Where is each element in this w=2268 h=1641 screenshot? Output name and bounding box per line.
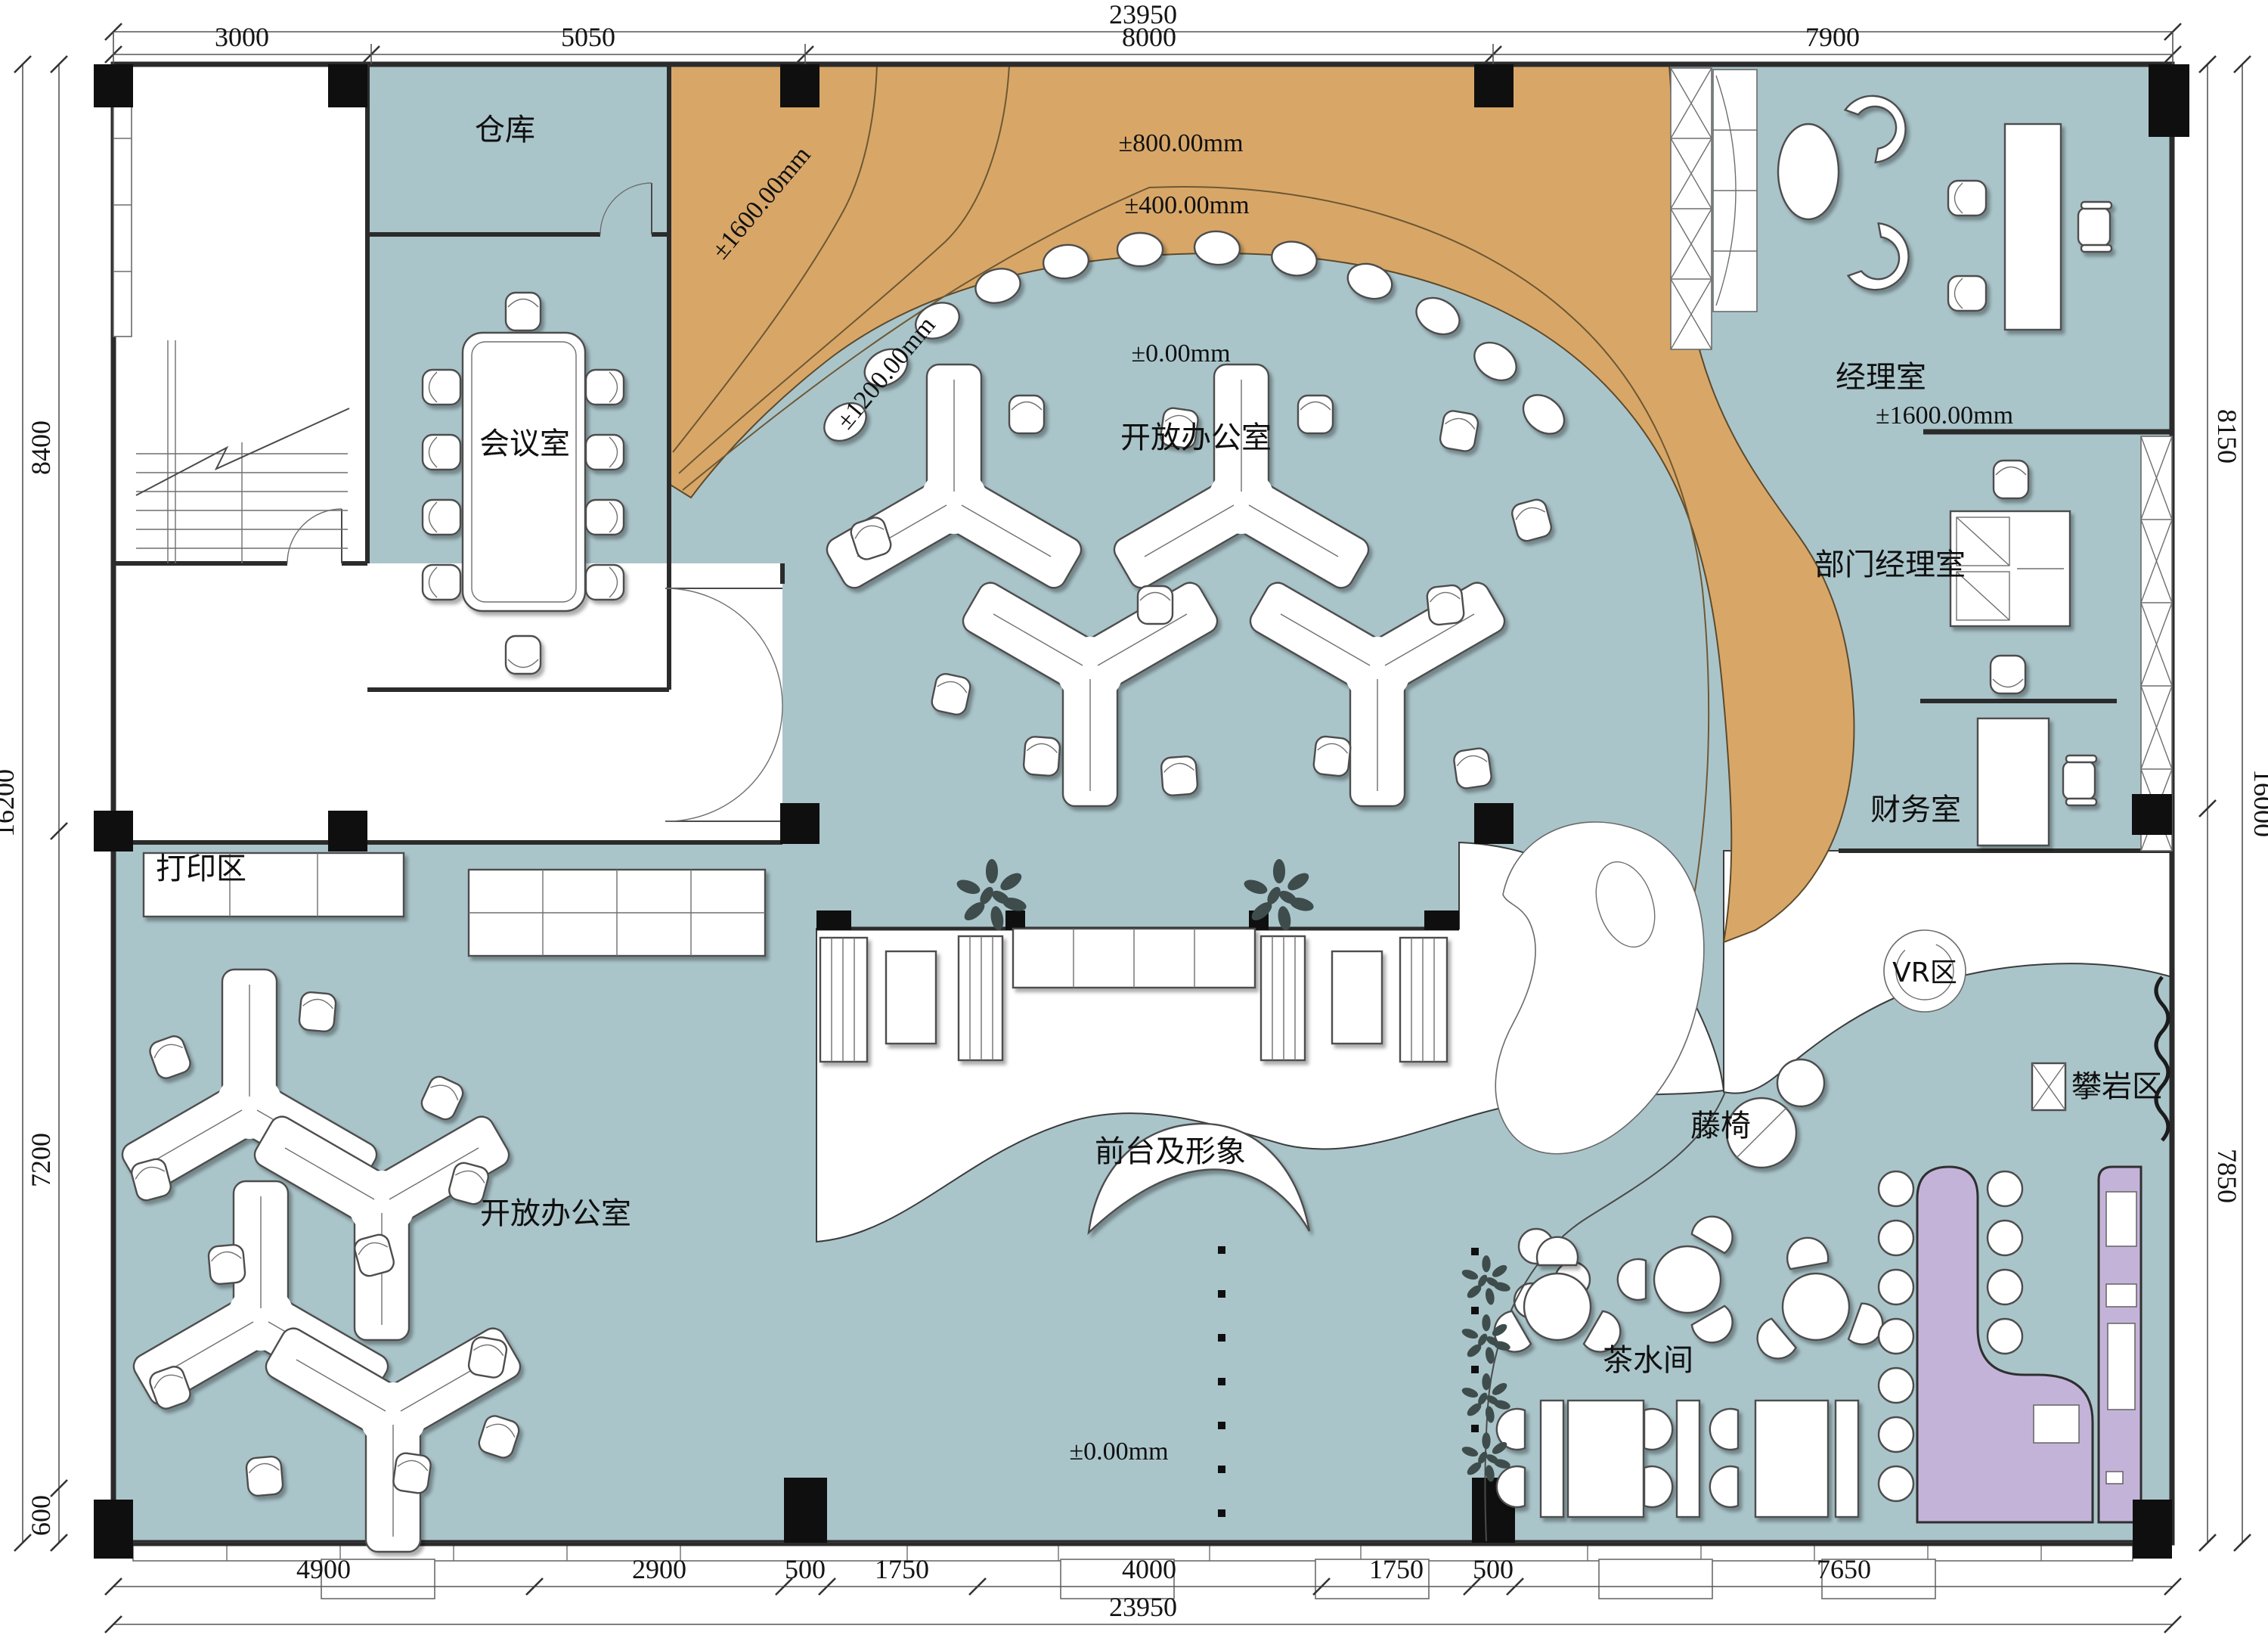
display-case <box>1261 936 1305 1060</box>
display-case <box>820 938 867 1062</box>
display-case <box>1400 938 1447 1062</box>
climbing-marker <box>2032 1063 2065 1110</box>
floor-plan-canvas: 仓库 会议室 开放办公室 ±0.00mm ±800.00mm ±400.00mm… <box>0 0 2268 1641</box>
dim-right-total: 16000 <box>2248 769 2268 837</box>
dim-left-total: 16200 <box>0 769 20 837</box>
label-vr: VR区 <box>1892 957 1957 988</box>
dim-left-seg-0: 8400 <box>26 420 56 475</box>
dim-bottom-seg-1: 2900 <box>632 1554 686 1584</box>
label-climbing: 攀岩区 <box>2071 1069 2162 1104</box>
round-table <box>1778 124 1839 219</box>
label-dept-manager: 部门经理室 <box>1814 548 1966 582</box>
display-case <box>1332 951 1382 1044</box>
dim-top-seg-2: 8000 <box>1122 22 1176 52</box>
label-reception: 前台及形象 <box>1095 1134 1246 1169</box>
dim-bottom-seg-4: 4000 <box>1122 1554 1176 1584</box>
display-case <box>886 951 936 1044</box>
dim-bottom-seg-0: 4900 <box>296 1554 351 1584</box>
dim-top-seg-0: 3000 <box>215 22 269 52</box>
dim-bottom-seg-2: 500 <box>785 1554 826 1584</box>
label-open-office-left: 开放办公室 <box>480 1196 631 1231</box>
manager-desk <box>2005 124 2061 330</box>
label-print-area: 打印区 <box>156 852 246 886</box>
label-open-office-top: 开放办公室 <box>1120 420 1272 455</box>
label-warehouse: 仓库 <box>475 113 535 147</box>
dim-left-seg-2: 600 <box>26 1495 56 1536</box>
west-window-band <box>113 72 132 337</box>
label-meeting-room: 会议室 <box>479 427 570 461</box>
label-elev-0-top: ±0.00mm <box>1131 340 1230 368</box>
east-curtain-wall <box>2141 436 2172 851</box>
dim-left-seg-1: 7200 <box>26 1133 56 1187</box>
dim-bottom-seg-5: 1750 <box>1369 1554 1424 1584</box>
dim-right-seg-0: 8150 <box>2212 409 2242 464</box>
label-elev-0-bottom: ±0.00mm <box>1069 1438 1168 1466</box>
label-elev-1600-manager: ±1600.00mm <box>1876 402 2013 430</box>
label-manager-office: 经理室 <box>1836 360 1926 395</box>
dim-bottom-seg-3: 1750 <box>875 1554 929 1584</box>
dim-top-seg-3: 7900 <box>1805 22 1860 52</box>
conference-table <box>463 333 585 611</box>
dim-bottom-seg-7: 7650 <box>1817 1554 1871 1584</box>
label-finance: 财务室 <box>1870 793 1961 827</box>
manager-west-partition <box>1671 68 1712 349</box>
dim-bottom-total: 23950 <box>1109 1592 1177 1622</box>
label-elev-400: ±400.00mm <box>1124 191 1249 219</box>
dim-top-seg-1: 5050 <box>561 22 615 52</box>
display-case <box>959 936 1002 1060</box>
manager-wardrobe <box>1713 70 1757 312</box>
finance-desk <box>1978 718 2049 845</box>
label-elev-800: ±800.00mm <box>1118 129 1243 157</box>
label-rattan: 藤椅 <box>1690 1109 1751 1143</box>
dim-bottom-seg-6: 500 <box>1473 1554 1514 1584</box>
dim-right-seg-1: 7850 <box>2212 1149 2242 1203</box>
booth-seating <box>1497 1401 1858 1517</box>
label-tea-room: 茶水间 <box>1603 1343 1693 1378</box>
